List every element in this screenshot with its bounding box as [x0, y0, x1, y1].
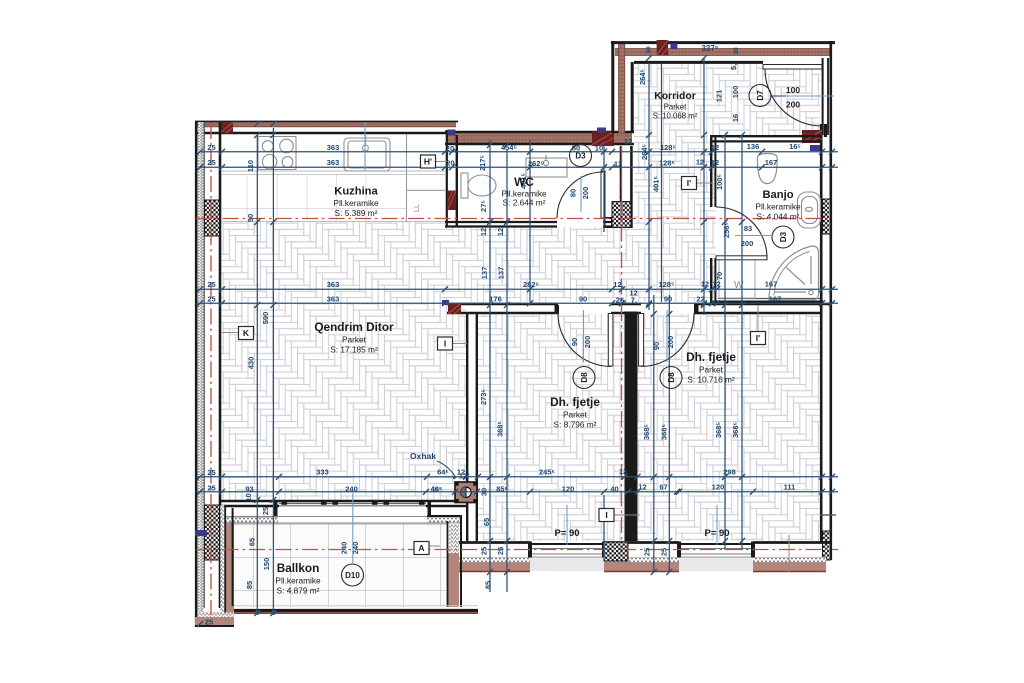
svg-text:85: 85	[484, 581, 493, 589]
svg-text:176: 176	[489, 295, 502, 304]
svg-text:S: 5.389 m²: S: 5.389 m²	[335, 208, 378, 218]
svg-text:12: 12	[614, 160, 622, 169]
svg-text:111: 111	[784, 483, 796, 492]
svg-text:430: 430	[247, 357, 256, 370]
svg-text:67: 67	[659, 483, 667, 492]
svg-text:167: 167	[765, 280, 778, 289]
svg-text:337⁵: 337⁵	[701, 44, 718, 53]
svg-text:368⁵: 368⁵	[660, 424, 669, 441]
svg-text:46⁵: 46⁵	[431, 485, 443, 494]
svg-text:25: 25	[496, 547, 505, 555]
svg-text:16⁵: 16⁵	[789, 142, 801, 151]
svg-text:Qendrim Ditor: Qendrim Ditor	[314, 320, 394, 334]
svg-text:12: 12	[711, 158, 719, 167]
svg-text:22: 22	[696, 295, 704, 304]
svg-text:12: 12	[496, 228, 505, 236]
svg-text:100: 100	[786, 85, 800, 95]
svg-text:245⁵: 245⁵	[539, 468, 556, 477]
svg-text:D7: D7	[756, 90, 765, 101]
svg-text:240: 240	[345, 485, 358, 494]
svg-text:90: 90	[579, 295, 587, 304]
svg-text:10,: 10,	[595, 144, 605, 153]
svg-text:25: 25	[205, 618, 213, 627]
svg-text:20,: 20,	[446, 144, 456, 153]
svg-text:240: 240	[340, 542, 349, 555]
svg-text:Oxhak: Oxhak	[410, 451, 436, 461]
svg-text:LL: LL	[412, 204, 421, 212]
svg-text:363: 363	[327, 158, 340, 167]
svg-text:12: 12	[459, 472, 467, 481]
svg-text:167: 167	[765, 158, 778, 167]
svg-text:S: 17.185 m²: S: 17.185 m²	[330, 345, 378, 355]
svg-text:83: 83	[744, 224, 752, 233]
svg-text:25: 25	[207, 158, 215, 167]
svg-text:Korridor: Korridor	[654, 91, 696, 102]
svg-text:120: 120	[562, 485, 575, 494]
svg-text:S: 2.644 m²: S: 2.644 m²	[503, 198, 546, 208]
svg-text:85: 85	[245, 581, 254, 589]
svg-text:200: 200	[786, 100, 800, 110]
svg-text:363: 363	[327, 280, 340, 289]
svg-text:80: 80	[569, 189, 578, 197]
svg-text:Pll.keramike: Pll.keramike	[333, 198, 379, 208]
svg-text:368⁵: 368⁵	[714, 422, 723, 439]
svg-text:200: 200	[741, 239, 754, 248]
svg-text:30: 30	[646, 46, 653, 54]
svg-text:S: 4.044 m²: S: 4.044 m²	[757, 212, 800, 222]
svg-text:401⁵: 401⁵	[652, 176, 661, 193]
svg-text:90: 90	[664, 295, 672, 304]
svg-text:I': I'	[687, 178, 691, 188]
svg-text:12,: 12,	[613, 280, 623, 289]
svg-text:85⁵: 85⁵	[496, 485, 508, 494]
svg-text:12: 12	[711, 143, 719, 152]
svg-text:Ballkon: Ballkon	[277, 561, 320, 575]
svg-text:128⁵: 128⁵	[659, 159, 676, 168]
svg-text:333: 333	[316, 468, 329, 477]
svg-text:167: 167	[769, 295, 782, 304]
svg-text:137: 137	[497, 267, 506, 280]
svg-text:50: 50	[246, 214, 255, 222]
svg-text:65: 65	[248, 538, 257, 546]
svg-text:200: 200	[581, 187, 590, 200]
svg-text:D8: D8	[580, 372, 589, 383]
svg-text:298: 298	[723, 468, 736, 477]
svg-text:Dh. fjetje: Dh. fjetje	[550, 395, 600, 409]
svg-text:WC: WC	[514, 175, 534, 189]
svg-text:256⁵: 256⁵	[722, 222, 731, 239]
svg-text:Pll.keramike: Pll.keramike	[275, 576, 321, 586]
svg-text:282⁵: 282⁵	[523, 280, 540, 289]
svg-text:I: I	[605, 510, 607, 520]
svg-text:368⁵: 368⁵	[642, 424, 651, 441]
svg-text:110: 110	[246, 160, 255, 172]
svg-text:26,: 26,	[616, 296, 626, 305]
svg-text:P= 90: P= 90	[704, 528, 729, 539]
svg-text:363: 363	[327, 143, 340, 152]
svg-text:D10: D10	[345, 571, 360, 580]
svg-text:200: 200	[583, 336, 592, 349]
svg-text:5,: 5,	[729, 64, 738, 70]
svg-text:Banjo: Banjo	[762, 189, 793, 201]
svg-text:D3: D3	[779, 231, 788, 242]
svg-text:Parket: Parket	[563, 410, 588, 420]
svg-text:128⁵: 128⁵	[660, 143, 677, 152]
svg-text:368⁵: 368⁵	[496, 421, 505, 438]
svg-text:120: 120	[712, 483, 725, 492]
svg-text:12: 12	[701, 280, 709, 289]
svg-text:128⁵: 128⁵	[658, 280, 675, 289]
svg-text:25: 25	[207, 484, 215, 493]
svg-text:25: 25	[643, 548, 652, 556]
svg-text:S: 10.716 m²: S: 10.716 m²	[687, 375, 735, 385]
svg-text:Parket: Parket	[699, 365, 724, 375]
svg-text:264⁵: 264⁵	[638, 69, 647, 86]
svg-text:64⁵: 64⁵	[437, 468, 449, 477]
svg-text:363: 363	[327, 295, 340, 304]
svg-text:30: 30	[733, 47, 740, 55]
svg-text:P= 90: P= 90	[554, 528, 579, 539]
svg-text:10: 10	[244, 493, 253, 501]
svg-text:S: 8.796 m²: S: 8.796 m²	[554, 420, 597, 430]
svg-text:25: 25	[207, 280, 215, 289]
svg-text:65: 65	[482, 518, 491, 526]
svg-text:7,: 7,	[631, 296, 637, 305]
svg-text:100: 100	[731, 86, 740, 99]
svg-text:K: K	[243, 328, 250, 338]
svg-text:12: 12	[696, 158, 704, 167]
svg-text:12: 12	[638, 483, 646, 492]
svg-text:Dh. fjetje: Dh. fjetje	[686, 350, 736, 364]
svg-text:25: 25	[480, 547, 489, 555]
svg-text:12: 12	[479, 228, 488, 236]
svg-text:25: 25	[261, 507, 270, 515]
svg-text:240: 240	[351, 542, 360, 555]
svg-text:121: 121	[715, 90, 724, 103]
svg-text:90: 90	[570, 338, 579, 346]
svg-text:93: 93	[245, 485, 253, 494]
svg-text:150: 150	[262, 558, 271, 571]
svg-text:454⁵: 454⁵	[501, 143, 518, 152]
svg-text:S: 10.068 m²: S: 10.068 m²	[653, 112, 698, 121]
svg-text:I: I	[444, 339, 446, 349]
svg-text:25: 25	[207, 468, 215, 477]
svg-text:273⁵: 273⁵	[479, 389, 488, 406]
svg-text:30: 30	[480, 488, 489, 496]
svg-text:262⁵: 262⁵	[528, 159, 545, 168]
svg-text:D8: D8	[667, 372, 676, 383]
svg-text:100⁵: 100⁵	[715, 174, 724, 191]
svg-text:Pll.keramike: Pll.keramike	[755, 202, 801, 212]
svg-text:16: 16	[731, 114, 740, 122]
svg-text:40: 40	[610, 485, 618, 494]
svg-text:590: 590	[261, 312, 270, 325]
svg-text:Parket: Parket	[664, 103, 687, 112]
svg-text:25: 25	[207, 295, 215, 304]
svg-text:90: 90	[652, 342, 661, 350]
svg-text:25: 25	[660, 548, 669, 556]
svg-text:20,: 20,	[446, 159, 456, 168]
svg-text:25: 25	[207, 143, 215, 152]
svg-text:264⁵: 264⁵	[640, 144, 649, 161]
svg-text:368⁵: 368⁵	[731, 422, 740, 439]
svg-text:Kuzhina: Kuzhina	[334, 186, 378, 198]
svg-text:137: 137	[480, 267, 489, 280]
svg-text:I': I'	[756, 333, 760, 343]
svg-text:12: 12	[619, 467, 627, 476]
svg-text:217⁵: 217⁵	[478, 155, 487, 172]
svg-text:70: 70	[715, 272, 724, 280]
svg-text:12: 12	[624, 137, 632, 146]
svg-text:136: 136	[747, 142, 760, 151]
svg-text:27⁵: 27⁵	[479, 200, 488, 212]
svg-text:H': H'	[424, 157, 432, 167]
svg-text:A: A	[418, 543, 424, 553]
svg-text:D3: D3	[575, 152, 586, 161]
svg-text:S: 4.879 m²: S: 4.879 m²	[277, 586, 320, 596]
svg-text:Parket: Parket	[342, 335, 367, 345]
